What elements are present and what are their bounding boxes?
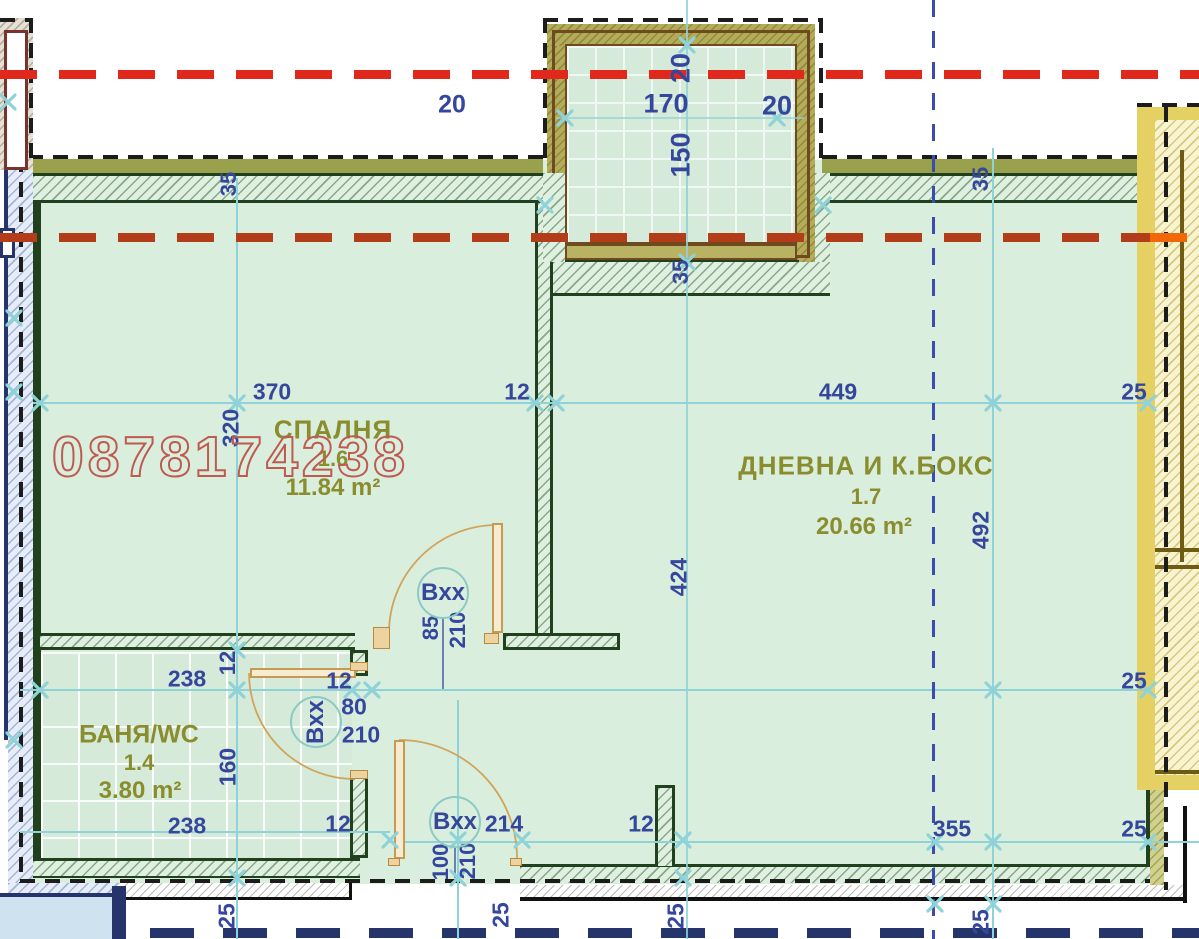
- dimension-label: 150: [666, 132, 697, 177]
- dimension-label: 35: [216, 172, 242, 196]
- dimension-tick: [985, 834, 1002, 851]
- dimension-tick: [927, 896, 944, 913]
- bathroom-number: 1.4: [124, 750, 155, 776]
- dimension-label: 35: [968, 167, 994, 191]
- dimension-label: 100: [428, 844, 454, 881]
- orange-dashed-tail: [1150, 233, 1199, 242]
- dimension-label: 355: [933, 816, 971, 843]
- dimension-label: 170: [643, 89, 688, 120]
- living-number: 1.7: [851, 484, 882, 510]
- door-jamb: [510, 858, 522, 866]
- dimension-label: 25: [1121, 816, 1147, 843]
- dimension-label: 492: [968, 511, 995, 549]
- dimension-label: 424: [666, 558, 693, 596]
- door-jamb: [484, 633, 499, 644]
- living-area: 20.66 m²: [816, 513, 912, 541]
- dimension-label: 449: [819, 379, 857, 406]
- floor-plan: СПАЛНЯ 1.6 11.84 m² ДНЕВНА И К.БОКС 1.7 …: [0, 0, 1199, 939]
- dimension-label: 25: [488, 902, 515, 928]
- dimension-tick: [0, 94, 17, 111]
- dimension-label: 210: [455, 843, 481, 880]
- dimension-label: 25: [214, 903, 241, 929]
- dimension-label: 25: [968, 909, 995, 935]
- dimension-tick: [985, 395, 1002, 412]
- dimension-label: 160: [215, 748, 242, 786]
- red-dashed-line-mid: [0, 233, 1150, 242]
- dimension-label: 238: [168, 813, 206, 840]
- dimension-tick: [675, 832, 692, 849]
- red-dashed-line-top: [0, 70, 1199, 79]
- dimension-label: 12: [504, 379, 530, 406]
- dimension-label: 210: [342, 722, 380, 749]
- door-jamb: [350, 662, 368, 671]
- bathroom-area: 3.80 m²: [99, 777, 182, 805]
- dimension-label: 12: [325, 811, 351, 838]
- dimension-tick: [548, 395, 565, 412]
- dimension-tick: [815, 197, 832, 214]
- bedroom-door-leaf: [492, 523, 503, 633]
- dimension-label: 20: [438, 91, 466, 120]
- door-tag: Bxx: [429, 796, 481, 848]
- dimension-label: 12: [215, 651, 241, 675]
- dimension-label: 20: [666, 53, 697, 83]
- dimension-tick: [229, 870, 246, 887]
- dimension-tick: [985, 682, 1002, 699]
- bathroom-name: БАНЯ/WC: [79, 721, 199, 750]
- phone-watermark: 0878174238: [52, 424, 409, 490]
- dimension-tick: [32, 395, 49, 412]
- dimension-label: 214: [485, 811, 523, 838]
- dimension-tick: [229, 682, 246, 699]
- dimension-label: 12: [628, 811, 654, 838]
- dimension-label: 80: [341, 694, 367, 721]
- dimension-tick: [6, 310, 23, 327]
- dimension-label: 85: [418, 616, 444, 640]
- dimension-label: 20: [762, 91, 792, 122]
- door-jamb: [350, 770, 368, 779]
- door-tag: Bxx: [417, 567, 469, 619]
- dimension-label: 25: [663, 903, 690, 929]
- door-jamb: [388, 858, 400, 866]
- dimension-tick: [32, 682, 49, 699]
- dimension-tick: [382, 832, 399, 849]
- door-jamb: [373, 627, 390, 649]
- dimension-label: 35: [668, 260, 694, 284]
- dimension-tick: [6, 384, 23, 401]
- dimension-tick: [557, 110, 574, 127]
- dimension-label: 25: [1121, 668, 1147, 695]
- dimension-tick: [675, 870, 692, 887]
- dimension-label: 238: [168, 666, 206, 693]
- dimension-tick: [6, 732, 23, 749]
- dimension-tick: [537, 197, 554, 214]
- dimension-label: 12: [326, 668, 352, 695]
- dimension-label: 370: [253, 379, 291, 406]
- door-tag: Bxx: [290, 696, 342, 748]
- living-name: ДНЕВНА И К.БОКС: [738, 451, 993, 482]
- dimension-label: 25: [1121, 379, 1147, 406]
- dimension-tick: [679, 37, 696, 54]
